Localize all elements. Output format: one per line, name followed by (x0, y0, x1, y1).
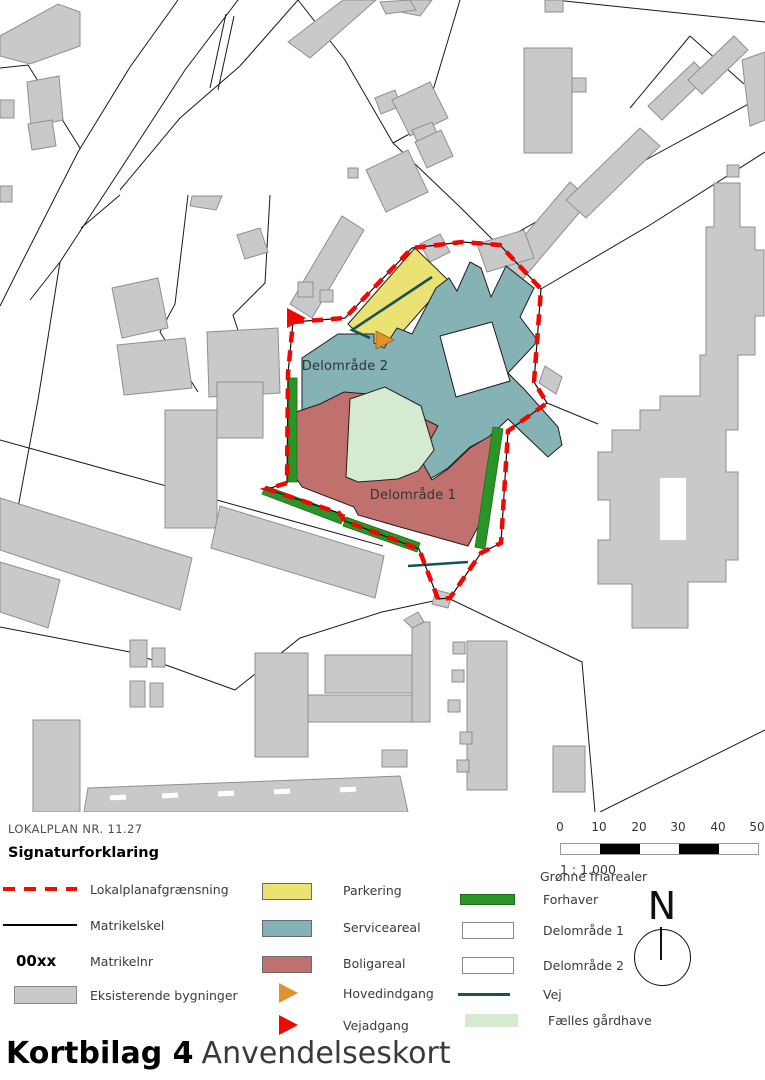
delomraade-1-box-icon (462, 922, 514, 939)
map-canvas: Delområde 2 Delområde 1 (0, 0, 765, 812)
legend-label-forhaver: Forhaver (543, 892, 598, 907)
scale-tick: 10 (586, 820, 612, 834)
legend-label-boligareal: Boligareal (343, 956, 405, 971)
legend-label-parkering: Parkering (343, 883, 402, 898)
matrikelnr-sample-icon: 00xx (16, 952, 56, 970)
scale-bar-segments (560, 843, 759, 855)
scale-tick: 40 (705, 820, 731, 834)
legend-label-vejadgang: Vejadgang (343, 1018, 409, 1033)
scale-tick: 20 (626, 820, 652, 834)
hovedindgang-legend-icon (279, 983, 298, 1003)
legend-label-matrikelskel: Matrikelskel (90, 918, 164, 933)
serviceareal-swatch-icon (262, 920, 312, 937)
scale-bar: 0 10 20 30 40 50 1 : 1.000 (557, 820, 762, 880)
legend-label-matrikelnr: Matrikelnr (90, 954, 153, 969)
legend-label-eksisterende-bygninger: Eksisterende bygninger (90, 988, 238, 1003)
north-arrow-letter: N (640, 884, 684, 928)
gray-building-icon (14, 986, 77, 1004)
north-arrow-needle-icon (660, 927, 662, 960)
faelles-gaardhave-swatch-icon (465, 1014, 518, 1027)
vej-line-icon (458, 993, 510, 996)
north-arrow-circle-icon (634, 929, 691, 986)
plan-number: LOKALPLAN NR. 11.27 (8, 822, 142, 836)
legend-label-hovedindgang: Hovedindgang (343, 986, 434, 1001)
legend-label-serviceareal: Serviceareal (343, 920, 421, 935)
legend-label-delomraade-1: Delområde 1 (543, 923, 624, 938)
legend-label-faelles-gaardhave: Fælles gårdhave (548, 1013, 652, 1028)
map-label-delomraade-1: Delområde 1 (348, 488, 478, 503)
boligareal-swatch-icon (262, 956, 312, 973)
black-line-icon (3, 924, 77, 926)
scale-tick: 30 (665, 820, 691, 834)
scale-tick: 50 (744, 820, 765, 834)
legend-heading: Signaturforklaring (8, 845, 159, 861)
page-title-regular: Anvendelseskort (202, 1036, 451, 1071)
page-title: Kortbilag 4Anvendelseskort (6, 1036, 451, 1071)
parkering-swatch-icon (262, 883, 312, 900)
legend-label-vej: Vej (543, 987, 562, 1002)
scale-tick: 0 (547, 820, 573, 834)
page-title-bold: Kortbilag 4 (6, 1036, 194, 1071)
delomraade-2-box-icon (462, 957, 514, 974)
forhaver-swatch-icon (460, 894, 515, 905)
red-dashed-line-icon (3, 887, 77, 891)
cadastral-map (0, 0, 765, 812)
legend-label-lokalplanafgraensning: Lokalplanafgrænsning (90, 882, 229, 897)
legend-label-delomraade-2: Delområde 2 (543, 958, 624, 973)
map-label-delomraade-2: Delområde 2 (280, 359, 410, 374)
vejadgang-legend-icon (279, 1015, 298, 1035)
scale-ratio: 1 : 1.000 (560, 862, 616, 877)
